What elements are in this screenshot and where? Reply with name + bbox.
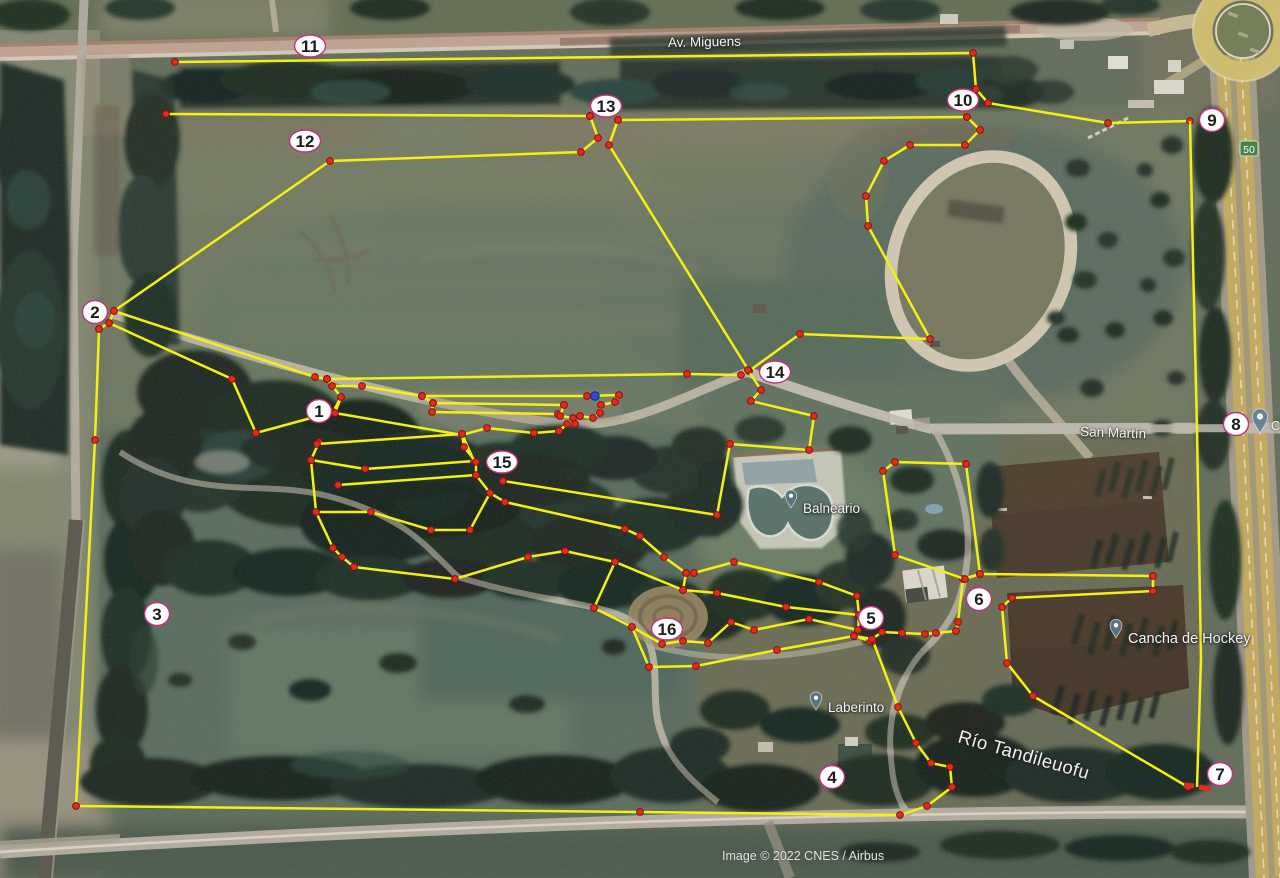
svg-text:7: 7 bbox=[1215, 765, 1224, 784]
svg-text:1: 1 bbox=[314, 402, 323, 421]
svg-text:4: 4 bbox=[827, 768, 837, 787]
svg-text:11: 11 bbox=[301, 37, 319, 56]
svg-text:Cancha de Hockey: Cancha de Hockey bbox=[1128, 631, 1251, 647]
svg-text:Av. Miguens: Av. Miguens bbox=[668, 34, 742, 50]
svg-text:9: 9 bbox=[1207, 111, 1216, 130]
svg-text:Balneario: Balneario bbox=[803, 501, 860, 516]
svg-text:2: 2 bbox=[90, 303, 99, 322]
svg-text:Cl: Cl bbox=[1271, 419, 1280, 433]
svg-text:13: 13 bbox=[597, 97, 616, 116]
svg-text:6: 6 bbox=[974, 590, 983, 609]
svg-text:5: 5 bbox=[866, 609, 875, 628]
svg-text:14: 14 bbox=[766, 363, 785, 382]
svg-text:Laberinto: Laberinto bbox=[828, 700, 884, 715]
svg-text:10: 10 bbox=[954, 91, 973, 110]
svg-text:12: 12 bbox=[296, 132, 315, 151]
svg-text:3: 3 bbox=[152, 605, 161, 624]
svg-text:San Martín: San Martín bbox=[1080, 424, 1147, 441]
svg-text:16: 16 bbox=[658, 620, 677, 639]
svg-text:15: 15 bbox=[493, 453, 512, 472]
svg-text:50: 50 bbox=[1243, 144, 1255, 156]
svg-text:Image © 2022 CNES / Airbus: Image © 2022 CNES / Airbus bbox=[722, 849, 884, 863]
svg-text:8: 8 bbox=[1231, 415, 1240, 434]
